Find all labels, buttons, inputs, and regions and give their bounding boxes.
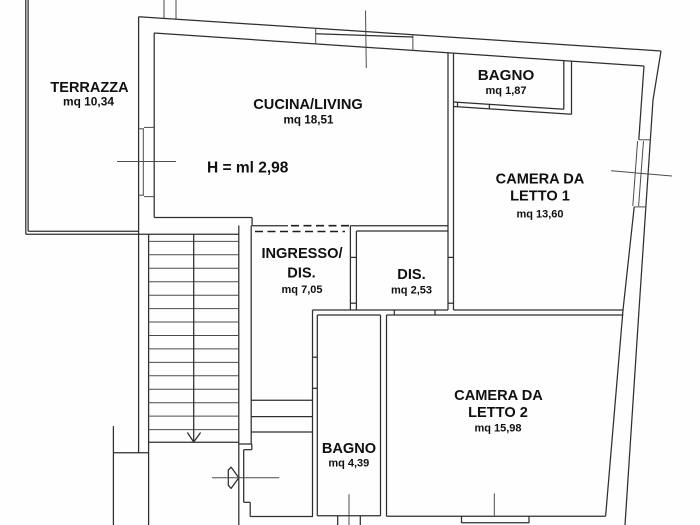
svg-text:LETTO 2: LETTO 2	[468, 405, 528, 421]
svg-text:mq 18,51: mq 18,51	[283, 113, 334, 126]
svg-text:CAMERA DA: CAMERA DA	[496, 172, 585, 188]
svg-text:CUCINA/LIVING: CUCINA/LIVING	[253, 97, 362, 113]
svg-text:mq 4,39: mq 4,39	[328, 457, 369, 469]
svg-text:INGRESSO/: INGRESSO/	[261, 246, 342, 262]
svg-text:LETTO 1: LETTO 1	[510, 188, 570, 204]
svg-text:mq 15,98: mq 15,98	[474, 423, 521, 435]
svg-text:BAGNO: BAGNO	[478, 67, 535, 84]
svg-text:TERRAZZA: TERRAZZA	[50, 80, 129, 96]
svg-text:mq 13,60: mq 13,60	[516, 209, 563, 221]
svg-text:CAMERA DA: CAMERA DA	[454, 388, 543, 404]
svg-text:mq 1,87: mq 1,87	[486, 85, 527, 97]
svg-text:DIS.: DIS.	[397, 267, 425, 283]
svg-text:BAGNO: BAGNO	[322, 441, 376, 457]
svg-text:H = ml 2,98: H = ml 2,98	[207, 159, 289, 176]
svg-text:DIS.: DIS.	[287, 266, 315, 282]
svg-text:mq 10,34: mq 10,34	[63, 95, 114, 109]
svg-text:mq 7,05: mq 7,05	[282, 284, 323, 296]
svg-text:mq 2,53: mq 2,53	[391, 284, 432, 296]
